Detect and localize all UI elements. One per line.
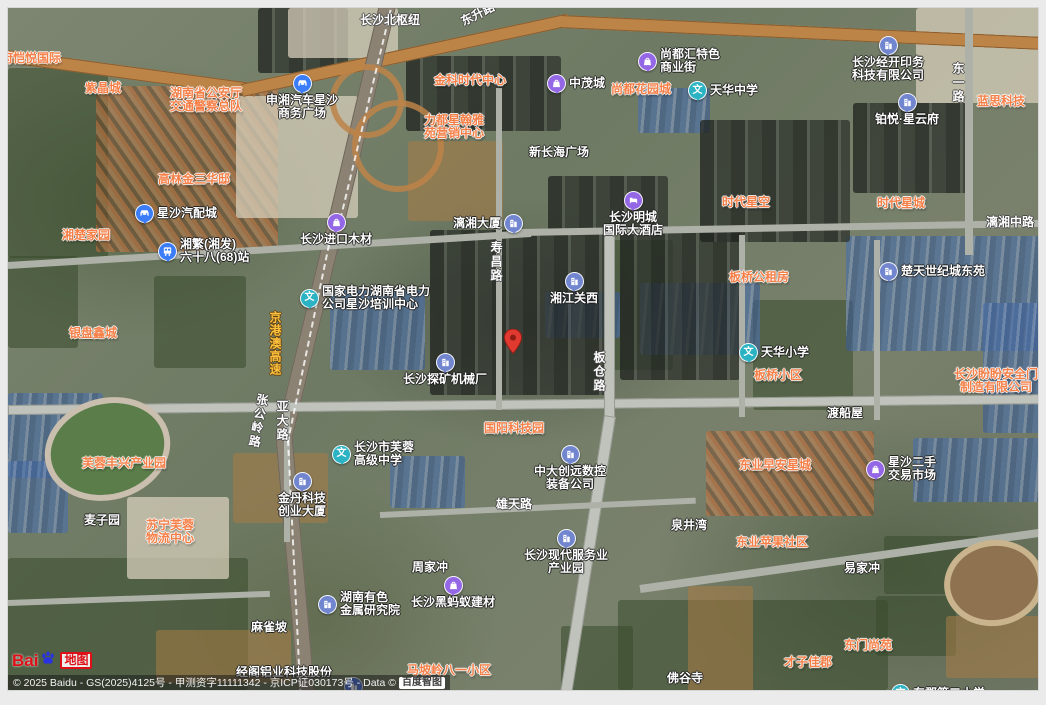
map-label[interactable]: 时代星空 (722, 196, 770, 209)
baidu-map-wordmark: 地图 (60, 652, 92, 669)
label-text: 易家冲 (844, 562, 880, 575)
label-text: 长沙经开印务科技有限公司 (852, 56, 924, 82)
company-icon[interactable] (898, 93, 917, 112)
company-icon[interactable] (879, 36, 898, 55)
map-label[interactable]: 泉井湾 (671, 519, 707, 532)
hotel-icon[interactable] (624, 191, 643, 210)
label-text: 时代星空 (722, 196, 770, 209)
road-label: 东一路 (951, 62, 964, 104)
map-label[interactable]: 板桥公租房 (729, 271, 789, 284)
label-text: 星沙二手交易市场 (888, 456, 936, 482)
label-text: 东升路 (459, 8, 497, 28)
map-label[interactable]: 时代星城 (877, 197, 925, 210)
label-text: 尚都花园城 (611, 83, 671, 96)
road-label: 雄天路 (496, 498, 532, 511)
company-poi[interactable]: 长沙现代服务业产业园 (524, 529, 608, 575)
road (739, 235, 745, 417)
label-text: 新长海广场 (529, 146, 589, 159)
label-text: 尚都汇特色商业街 (660, 48, 720, 74)
company-poi[interactable]: 漓湘大厦 (453, 214, 523, 233)
label-text: 金科时代中心 (434, 74, 506, 87)
road-label: 漓湘中路 (986, 216, 1034, 229)
car-poi[interactable]: 申湘汽车星沙商务广场 (266, 74, 338, 120)
map-label[interactable]: 银盘鑫城 (69, 327, 117, 340)
page: { "logo": {"bai": "Bai", "word": "地图"}, … (0, 0, 1046, 705)
label-text: 长沙明城国际大酒店 (603, 211, 663, 237)
label-text: 长沙盼盼安全门制造有限公司 (954, 368, 1038, 394)
label-text: 佛谷寺 (667, 672, 703, 685)
label-text: 力都星翰雅苑营销中心 (424, 114, 484, 140)
map-label[interactable]: 金科时代中心 (434, 74, 506, 87)
car-icon[interactable] (293, 74, 312, 93)
school-poi[interactable]: 文东郡第二小学 (891, 684, 985, 690)
bus-icon[interactable] (158, 242, 177, 261)
school-icon[interactable]: 文 (332, 445, 351, 464)
map-label[interactable]: 紫晶城 (85, 82, 121, 95)
map-label[interactable]: 长沙盼盼安全门制造有限公司 (954, 368, 1038, 394)
label-text: 板仓路 (592, 351, 605, 393)
school-poi[interactable]: 文天华小学 (739, 343, 809, 362)
road-label: 京港澳高速 (268, 311, 281, 376)
label-text: 长沙现代服务业产业园 (524, 549, 608, 575)
label-text: 湘楚家园 (62, 229, 110, 242)
map-label[interactable]: 渡船屋 (827, 407, 863, 420)
label-text: 漓湘中路 (986, 216, 1034, 229)
label-text: 泉井湾 (671, 519, 707, 532)
car-poi[interactable]: 星沙汽配城 (135, 204, 217, 223)
map-data-brand-chip: 百度智图 (399, 677, 445, 689)
label-text: 星沙汽配城 (157, 207, 217, 220)
label-text: 国阳科技园 (484, 422, 544, 435)
map-label[interactable]: 佛谷寺 (667, 672, 703, 685)
label-text: 漓湘大厦 (453, 217, 501, 230)
school-poi[interactable]: 文天华中学 (688, 81, 758, 100)
label-text: 银盘鑫城 (69, 327, 117, 340)
label-text: 渡船屋 (827, 407, 863, 420)
map-label[interactable]: 麦子园 (84, 514, 120, 527)
label-text: 东门尚苑 (844, 639, 892, 652)
map-label[interactable]: 新长海广场 (529, 146, 589, 159)
company-icon[interactable] (561, 445, 580, 464)
company-poi[interactable]: 中大创远数控装备公司 (534, 445, 606, 491)
company-poi[interactable]: 湘江关西 (550, 272, 598, 305)
bus-poi[interactable]: 湘繁(湘发)六十八(68)站 (158, 238, 249, 264)
label-text: 东业苹果社区 (736, 536, 808, 549)
satellite-patch (916, 8, 1038, 103)
road-label: 东升路 (459, 8, 497, 28)
school-icon[interactable]: 文 (688, 81, 707, 100)
map-label[interactable]: 苏宁芙蓉物流中心 (146, 519, 194, 545)
label-text: 金丹科技创业大厦 (278, 492, 326, 518)
shop-icon[interactable] (638, 52, 657, 71)
label-text: 楚天世纪城东苑 (901, 265, 985, 278)
label-text: 时代星城 (877, 197, 925, 210)
company-poi[interactable]: 楚天世纪城东苑 (879, 262, 985, 281)
label-text: 高林金三华邸 (158, 173, 230, 186)
label-text: 京港澳高速 (268, 311, 281, 376)
satellite-patch (154, 276, 246, 368)
company-poi[interactable]: 长沙经开印务科技有限公司 (852, 36, 924, 82)
road-label: 长沙北枢纽 (360, 14, 420, 27)
map-label[interactable]: 国阳科技园 (484, 422, 544, 435)
company-icon[interactable] (318, 595, 337, 614)
label-text: 亚大路 (275, 400, 288, 442)
label-text: 东一路 (951, 62, 964, 104)
map-label[interactable]: 湘府恺悦国际 (8, 52, 61, 65)
road (965, 8, 973, 255)
shop-icon[interactable] (547, 74, 566, 93)
label-text: 周家冲 (412, 561, 448, 574)
satellite-patch (8, 256, 78, 348)
label-text: 板桥小区 (754, 369, 802, 382)
company-icon[interactable] (879, 262, 898, 281)
map-label[interactable]: 易家冲 (844, 562, 880, 575)
shop-poi[interactable]: 星沙二手交易市场 (866, 456, 936, 482)
map-label[interactable]: 东业苹果社区 (736, 536, 808, 549)
map-label[interactable]: 东业早安星城 (739, 459, 811, 472)
company-icon[interactable] (557, 529, 576, 548)
label-text: 才子佳郡 (784, 656, 832, 669)
road-label: 寿昌路 (489, 241, 502, 283)
map-label[interactable]: 麻雀坡 (251, 621, 287, 634)
school-icon[interactable]: 文 (300, 289, 319, 308)
shop-poi[interactable]: 长沙进口木材 (300, 213, 372, 246)
label-text: 苏宁芙蓉物流中心 (146, 519, 194, 545)
map-label[interactable]: 尚都花园城 (611, 83, 671, 96)
map-label[interactable]: 东门尚苑 (844, 639, 892, 652)
label-text: 中大创远数控装备公司 (534, 465, 606, 491)
copyright-text: © 2025 Baidu - GS(2025)4125号 - 甲测资字11111… (13, 675, 396, 690)
label-text: 申湘汽车星沙商务广场 (266, 94, 338, 120)
label-text: 长沙北枢纽 (360, 14, 420, 27)
label-text: 麦子园 (84, 514, 120, 527)
label-text: 湘繁(湘发)六十八(68)站 (180, 238, 249, 264)
baidu-paw-icon (39, 649, 57, 672)
map-label[interactable]: 才子佳郡 (784, 656, 832, 669)
label-text: 天华中学 (710, 84, 758, 97)
map-label[interactable]: 高林金三华邸 (158, 173, 230, 186)
satellite-patch (620, 230, 740, 380)
label-text: 寿昌路 (489, 241, 502, 283)
baidu-maps-logo: Bai 地图 (12, 649, 92, 672)
company-icon[interactable] (293, 472, 312, 491)
shop-icon[interactable] (866, 460, 885, 479)
shop-icon[interactable] (327, 213, 346, 232)
map-label[interactable]: 力都星翰雅苑营销中心 (424, 114, 484, 140)
copyright-bar: © 2025 Baidu - GS(2025)4125号 - 甲测资字11111… (8, 675, 450, 690)
road (8, 394, 1038, 415)
map-canvas[interactable]: Bai 地图 © 2025 Baidu - GS(2025)4125号 - 甲测… (8, 8, 1038, 690)
school-icon[interactable]: 文 (739, 343, 758, 362)
satellite-patch (706, 431, 874, 516)
label-text: 麻雀坡 (251, 621, 287, 634)
label-text: 雄天路 (496, 498, 532, 511)
selected-location-pin[interactable] (504, 329, 522, 359)
label-text: 长沙市芙蓉高级中学 (354, 441, 414, 467)
company-icon[interactable] (565, 272, 584, 291)
road-label: 板仓路 (592, 351, 605, 393)
company-poi[interactable]: 湖南有色金属研究院 (318, 591, 400, 617)
label-text: 东业早安星城 (739, 459, 811, 472)
hotel-poi[interactable]: 长沙明城国际大酒店 (603, 191, 663, 237)
baidu-logo-text: Bai (12, 651, 38, 671)
label-text: 国家电力湖南省电力公司星沙培训中心 (322, 285, 430, 311)
shop-icon[interactable] (444, 576, 463, 595)
company-poi[interactable]: 铂悦·星云府 (875, 93, 939, 126)
company-icon[interactable] (504, 214, 523, 233)
label-text: 湖南有色金属研究院 (340, 591, 400, 617)
map-label[interactable]: 芙蓉丰兴产业园 (82, 457, 166, 470)
label-text: 张公岭路 (246, 392, 269, 449)
label-text: 蓝思科技 (977, 95, 1025, 108)
label-text: 天华小学 (761, 346, 809, 359)
company-poi[interactable]: 长沙探矿机械厂 (403, 353, 487, 386)
label-text: 湖南省公安厅交通警察总队 (170, 87, 242, 113)
school-poi[interactable]: 文长沙市芙蓉高级中学 (332, 441, 414, 467)
label-text: 芙蓉丰兴产业园 (82, 457, 166, 470)
road-label: 亚大路 (275, 400, 288, 442)
shop-poi[interactable]: 中茂城 (547, 74, 605, 93)
map-label[interactable]: 湖南省公安厅交通警察总队 (170, 87, 242, 113)
label-text: 板桥公租房 (729, 271, 789, 284)
map-label[interactable]: 蓝思科技 (977, 95, 1025, 108)
shop-poi[interactable]: 尚都汇特色商业街 (638, 48, 720, 74)
shop-poi[interactable]: 长沙黑蚂蚁建材 (411, 576, 495, 609)
map-label[interactable]: 湘楚家园 (62, 229, 110, 242)
school-icon[interactable]: 文 (891, 684, 910, 690)
label-text: 中茂城 (569, 77, 605, 90)
road-label: 张公岭路 (246, 392, 269, 449)
school-poi[interactable]: 文国家电力湖南省电力公司星沙培训中心 (300, 285, 430, 311)
company-icon[interactable] (436, 353, 455, 372)
label-text: 东郡第二小学 (913, 687, 985, 690)
label-text: 紫晶城 (85, 82, 121, 95)
company-poi[interactable]: 金丹科技创业大厦 (278, 472, 326, 518)
car-icon[interactable] (135, 204, 154, 223)
map-label[interactable]: 板桥小区 (754, 369, 802, 382)
map-label[interactable]: 周家冲 (412, 561, 448, 574)
label-text: 湘府恺悦国际 (8, 52, 61, 65)
